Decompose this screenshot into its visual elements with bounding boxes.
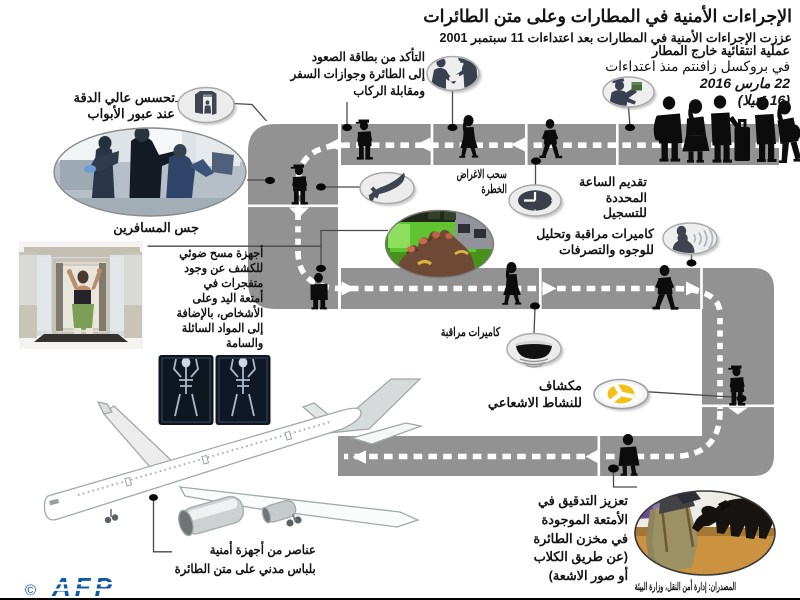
svg-text:©: © — [25, 582, 36, 599]
svg-text:AFP: AFP — [51, 572, 116, 600]
